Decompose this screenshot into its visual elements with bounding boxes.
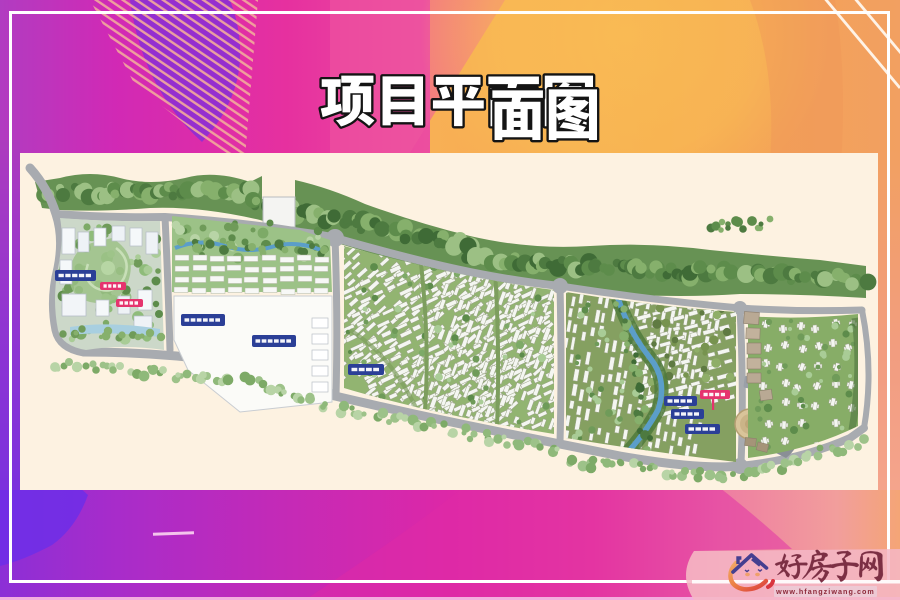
svg-text:www.hfangziwang.com: www.hfangziwang.com <box>775 587 875 596</box>
